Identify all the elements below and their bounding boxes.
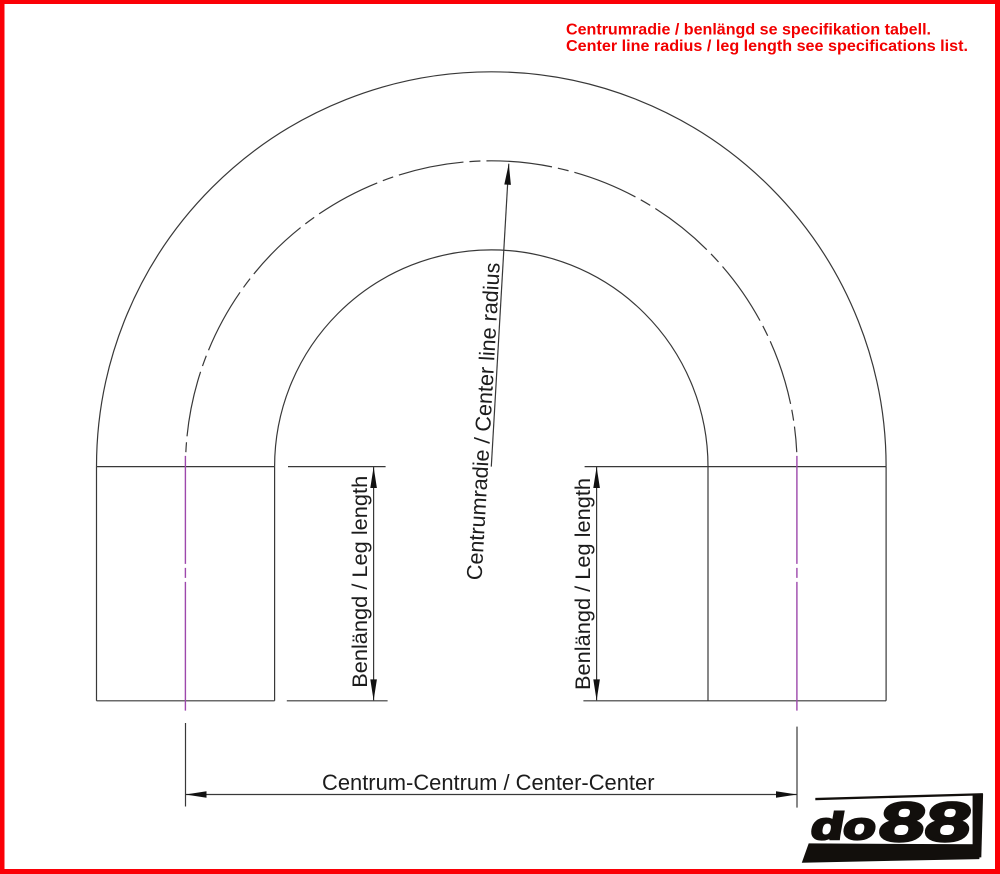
- svg-text:Centrumradie / benlängd se spe: Centrumradie / benlängd se specifikation…: [566, 22, 931, 39]
- svg-text:Centrum-Centrum / Center-Cente: Centrum-Centrum / Center-Center: [322, 770, 655, 795]
- svg-text:Center line radius / leg lengt: Center line radius / leg length see spec…: [566, 38, 968, 55]
- svg-text:Benlängd / Leg length: Benlängd / Leg length: [570, 478, 595, 690]
- svg-text:Benlängd / Leg length: Benlängd / Leg length: [347, 476, 372, 688]
- svg-text:do: do: [808, 806, 880, 848]
- svg-text:88: 88: [874, 790, 977, 853]
